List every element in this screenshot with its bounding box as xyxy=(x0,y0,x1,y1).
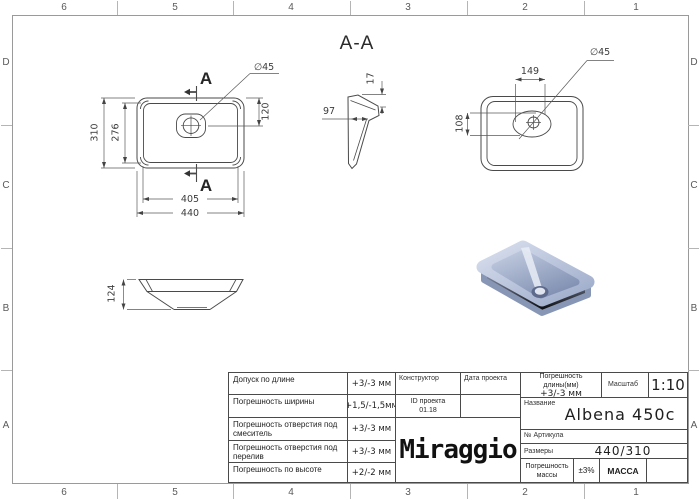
section-marker-top: A xyxy=(194,69,218,89)
tolerance-value: +1,5/-1,5мм xyxy=(347,394,396,418)
dim-side-height: 124 xyxy=(107,277,118,311)
mass-tolerance-label-cell: Погрешность массы xyxy=(520,458,574,483)
dim-outer-height: 310 xyxy=(90,116,101,150)
designer-cell: Конструктор xyxy=(395,372,461,395)
dim-drain-x: 149 xyxy=(513,66,547,77)
tolerance-label: Погрешность отверстия под смеситель xyxy=(228,417,348,441)
section-title: A-A xyxy=(327,33,387,55)
empty-cell xyxy=(460,394,521,418)
tolerance-label: Допуск по длине xyxy=(228,372,348,395)
dim-drain-offset: 120 xyxy=(261,95,272,129)
article-cell: № Артикула xyxy=(520,429,688,444)
sink-3d-render xyxy=(483,247,588,313)
name-value: Albena 450c xyxy=(555,402,685,427)
dim-wall-depth: 97 xyxy=(312,106,346,117)
length-tolerance-label: Погрешность длины(мм) xyxy=(521,372,601,390)
dim-outer-width: 440 xyxy=(173,208,207,219)
tolerance-label: Погрешность ширины xyxy=(228,394,348,418)
empty-cell xyxy=(646,458,688,483)
tolerance-value: +3/-3 мм xyxy=(347,440,396,463)
name-cell: Название Albena 450c xyxy=(520,397,688,430)
section-view xyxy=(348,95,379,169)
mass-label-cell: МАССА xyxy=(599,458,647,483)
dim-rim-thickness: 17 xyxy=(366,62,377,96)
name-label: Название xyxy=(521,398,555,408)
tolerance-label: Погрешность по высоте xyxy=(228,462,348,483)
dimensions-label: Размеры xyxy=(521,446,553,456)
tolerance-label: Погрешность отверстия под перелив xyxy=(228,440,348,463)
top-view xyxy=(481,97,583,171)
bottom-view xyxy=(137,86,244,182)
brand-logo: Miraggio xyxy=(395,417,521,483)
dimensions-value: 440/310 xyxy=(561,444,685,458)
dim-inner-width: 405 xyxy=(173,194,207,205)
tolerance-value: +3/-3 мм xyxy=(347,372,396,395)
dim-inner-height: 276 xyxy=(111,116,122,150)
side-view xyxy=(139,280,243,310)
tolerance-value: +2/-2 мм xyxy=(347,462,396,483)
mass-tolerance-value-cell: ±3% xyxy=(573,458,600,483)
dim-drain-diameter-top: ∅45 xyxy=(583,47,617,58)
drawing-sheet: 6 5 4 3 2 1 6 5 4 3 2 1 D C B A D C B A xyxy=(0,0,700,500)
scale-label-cell: Масштаб xyxy=(601,372,649,398)
project-id-cell: ID проекта 01.18 xyxy=(395,394,461,418)
drain-bottom-view xyxy=(177,114,206,138)
side-view-dimensions xyxy=(122,280,172,310)
tolerance-value: +3/-3 мм xyxy=(347,417,396,441)
drain-3d xyxy=(532,286,549,298)
title-block: Допуск по длине +3/-3 мм Погрешность шир… xyxy=(228,372,688,483)
length-tolerance-cell: Погрешность длины(мм) +3/-3 мм xyxy=(520,372,602,398)
project-id-value: 01.18 xyxy=(419,406,437,415)
dim-drain-y: 108 xyxy=(454,107,465,141)
project-id-label: ID проекта xyxy=(411,397,446,406)
scale-value-cell: 1:10 xyxy=(648,372,688,398)
dim-drain-diameter: ∅45 xyxy=(247,62,281,73)
dimensions-cell: Размеры 440/310 xyxy=(520,443,688,459)
project-date-cell: Дата проекта xyxy=(460,372,521,395)
